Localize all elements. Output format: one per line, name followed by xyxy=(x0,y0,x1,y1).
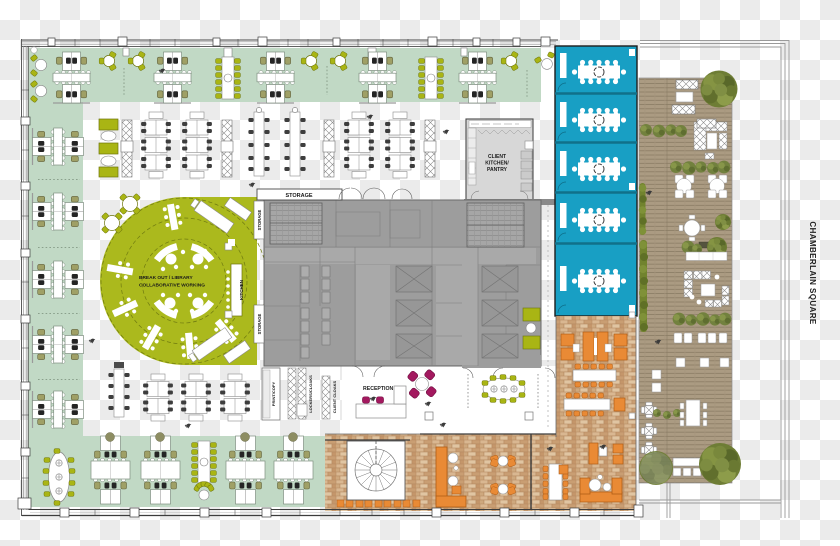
svg-text:STORAGE: STORAGE xyxy=(257,209,262,230)
svg-text:CHAMBERLAIN SQUARE: CHAMBERLAIN SQUARE xyxy=(808,221,817,324)
svg-text:PANTRY: PANTRY xyxy=(487,167,508,173)
svg-text:CLIENT: CLIENT xyxy=(488,154,506,160)
svg-text:KITCHEN: KITCHEN xyxy=(239,280,244,300)
svg-text:CLIENT CLOAKS: CLIENT CLOAKS xyxy=(332,380,337,413)
svg-text:RECEPTION: RECEPTION xyxy=(363,386,394,392)
svg-text:STORAGE: STORAGE xyxy=(285,193,312,199)
svg-text:KITCHEN/: KITCHEN/ xyxy=(485,161,509,167)
svg-text:LOCKERS/CLOAKS: LOCKERS/CLOAKS xyxy=(308,375,313,413)
svg-text:PRINT/COPY: PRINT/COPY xyxy=(271,381,276,406)
svg-text:COLLABORATIVE WORKING: COLLABORATIVE WORKING xyxy=(139,283,205,289)
svg-text:BREAK OUT / LIBRARY: BREAK OUT / LIBRARY xyxy=(139,275,193,281)
svg-text:STORAGE: STORAGE xyxy=(257,313,262,334)
